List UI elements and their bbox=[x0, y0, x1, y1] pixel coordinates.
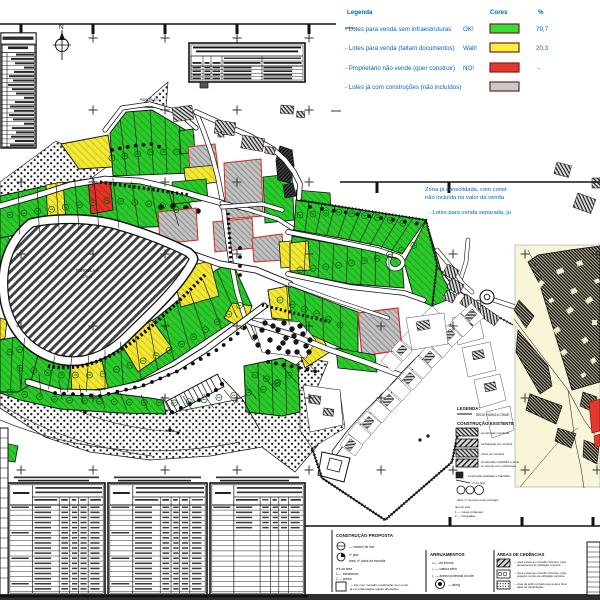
svg-text:área, nº pisos da moradia: área, nº pisos da moradia bbox=[349, 559, 385, 563]
svg-text:REDE VIÁRIA A CRIAR: REDE VIÁRIA A CRIAR bbox=[476, 413, 510, 417]
svg-text:não incluída no valor da venda: não incluída no valor da venda bbox=[425, 195, 505, 201]
svg-text:NO!: NO! bbox=[463, 65, 474, 72]
svg-text:2 — integradas: 2 — integradas bbox=[455, 514, 476, 518]
svg-text:-: - bbox=[538, 65, 540, 72]
svg-text:obra, nº de pisos e/ou prestíg: obra, nº de pisos e/ou prestígio bbox=[457, 498, 499, 502]
svg-text:já em urbanização sujeito alte: já em urbanização sujeito alterações bbox=[349, 587, 399, 591]
svg-text:2 — prédio: 2 — prédio bbox=[336, 577, 352, 581]
svg-text:arruamentos de utilização conj: arruamentos de utilização conjunta bbox=[517, 563, 561, 567]
svg-text:Zona já consolidada, com const: Zona já consolidada, com const bbox=[425, 187, 507, 193]
svg-text:CONSTRUÇÃO EXISTENTE: CONSTRUÇÃO EXISTENTE bbox=[457, 421, 514, 426]
svg-text:nº piso: nº piso bbox=[349, 553, 359, 557]
svg-text:ARRUAMENTOS: ARRUAMENTOS bbox=[430, 552, 465, 557]
svg-text:tipo de solo: tipo de solo bbox=[455, 505, 471, 509]
svg-text:construção concluída: construção concluída bbox=[481, 431, 510, 435]
svg-text:%: % bbox=[538, 9, 544, 16]
svg-text:Wait!: Wait! bbox=[463, 45, 477, 52]
svg-text:ÁREAS DE CEDÊNCIAS: ÁREAS DE CEDÊNCIAS bbox=[497, 552, 545, 557]
svg-text:Legenda: Legenda bbox=[347, 9, 373, 16]
svg-text:PARCELA A: PARCELA A bbox=[76, 268, 99, 273]
svg-text:nº de piso: nº de piso bbox=[472, 481, 486, 485]
svg-text:- Lotes já com construções (nã: - Lotes já com construções (não incluído… bbox=[345, 84, 461, 91]
svg-text:⊙— via interna: ⊙— via interna bbox=[432, 561, 454, 565]
svg-text:ef. acordo com vizinhança: ef. acordo com vizinhança bbox=[481, 464, 516, 468]
svg-text:Cores: Cores bbox=[490, 9, 508, 16]
svg-text:1 — loteamento: 1 — loteamento bbox=[336, 572, 359, 576]
svg-text:▷ — acesso potencial ao lote: ▷ — acesso potencial ao lote bbox=[432, 574, 474, 578]
svg-text:embargado por concluir: embargado por concluir bbox=[481, 442, 513, 446]
svg-text:170 m: 170 m bbox=[82, 275, 92, 279]
svg-text:OK!: OK! bbox=[463, 26, 474, 33]
svg-text:- Lotes para venda (faltam doc: - Lotes para venda (faltam documentos) bbox=[345, 45, 455, 52]
svg-text:20,3: 20,3 bbox=[536, 45, 549, 52]
svg-text:— número de lote: — número de lote bbox=[349, 545, 375, 549]
svg-text:- construção acabada e habitad: - construção acabada e habitada bbox=[466, 474, 510, 478]
svg-text:- Lotes para venda separada, j: - Lotes para venda separada, ju bbox=[429, 210, 511, 216]
svg-text:◇ — viatura séria: ◇ — viatura séria bbox=[432, 567, 457, 571]
svg-text:nºs de área: nºs de área bbox=[336, 567, 352, 571]
svg-text:tosco por concluir: tosco por concluir bbox=[481, 452, 505, 456]
svg-text:LEGENDA:: LEGENDA: bbox=[457, 406, 480, 411]
svg-text:- Lotes para venda sem infraes: - Lotes para venda sem infraestruturas bbox=[345, 26, 451, 33]
svg-text:PARCELA C: PARCELA C bbox=[140, 98, 159, 102]
svg-text:espaços verdes de utilização c: espaços verdes de utilização conjunta bbox=[517, 574, 565, 578]
svg-text:- Proprietário não vende (quer: - Proprietário não vende (quer construir… bbox=[345, 65, 455, 72]
svg-text:N: N bbox=[59, 24, 64, 31]
svg-text:CONSTRUÇÃO PROPOSTA: CONSTRUÇÃO PROPOSTA bbox=[336, 533, 394, 538]
svg-text:parte de urbanização: parte de urbanização bbox=[517, 585, 544, 589]
svg-text:— string: — string bbox=[448, 583, 460, 587]
svg-text:79,7: 79,7 bbox=[536, 26, 549, 33]
